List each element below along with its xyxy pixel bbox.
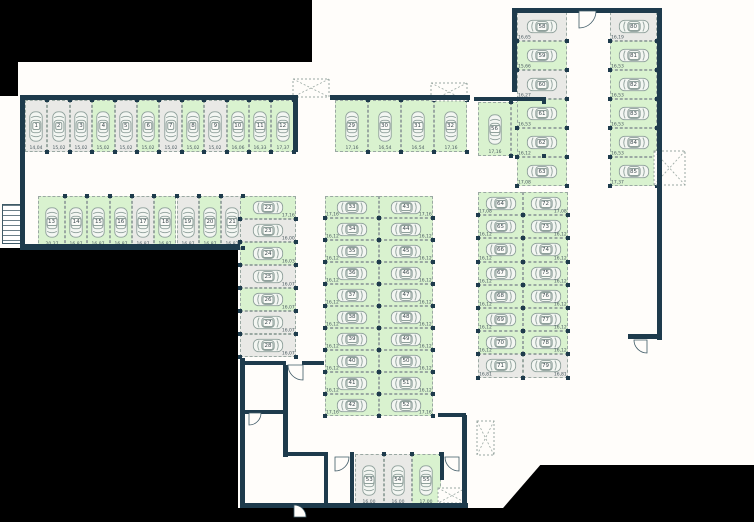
parking-space-23[interactable]: 2316,00	[240, 219, 296, 242]
space-number: 11	[255, 122, 266, 130]
parking-space-69[interactable]: 6916,12	[478, 308, 523, 331]
space-number: 21	[227, 218, 238, 226]
pillar	[431, 392, 435, 396]
pillar	[241, 246, 245, 250]
pillar	[521, 352, 525, 356]
space-dimension: 15,02	[164, 146, 177, 151]
wall	[657, 8, 662, 340]
space-number: 54	[392, 476, 403, 484]
pillar	[608, 39, 612, 43]
parking-space-40[interactable]: 4016,12	[325, 350, 379, 372]
parking-space-7[interactable]: 715,02	[159, 100, 181, 152]
parking-space-71[interactable]: 7116,81	[478, 354, 523, 377]
pillar	[521, 329, 525, 333]
parking-space-65[interactable]: 6516,12	[478, 215, 523, 238]
space-number: 15	[93, 218, 104, 226]
pillar	[399, 150, 403, 154]
parking-space-17[interactable]: 1716,87	[132, 196, 154, 248]
space-number: 30	[379, 122, 390, 130]
space-number: 79	[540, 362, 551, 370]
space-dimension: 16,81	[479, 372, 492, 377]
background-cutout	[0, 508, 754, 522]
space-dimension: 16,06	[231, 146, 244, 151]
space-dimension: 17,37	[611, 180, 624, 185]
parking-space-12[interactable]: 1217,37	[271, 100, 293, 152]
space-number: 85	[628, 168, 639, 176]
space-number: 33	[347, 203, 358, 211]
parking-space-5[interactable]: 515,02	[115, 100, 137, 152]
space-number: 58	[537, 23, 548, 31]
parking-space-81[interactable]: 8116,53	[610, 41, 657, 70]
parking-space-3[interactable]: 315,02	[70, 100, 92, 152]
space-number: 76	[540, 292, 551, 300]
pillar	[608, 155, 612, 159]
pillar	[294, 355, 298, 359]
space-dimension: 17,08	[518, 180, 531, 185]
parking-space-33[interactable]: 3317,16	[325, 196, 379, 218]
space-number: 43	[401, 203, 412, 211]
pillar	[323, 304, 327, 308]
pillar	[202, 150, 206, 154]
pillar	[521, 283, 525, 287]
space-number: 56	[489, 125, 500, 133]
space-number: 63	[537, 168, 548, 176]
pillar	[108, 194, 112, 198]
space-dimension: 16,53	[611, 93, 624, 98]
space-dimension: 16,12	[479, 325, 492, 330]
space-number: 46	[401, 269, 412, 277]
space-number: 29	[346, 122, 357, 130]
door-arc-icon	[293, 503, 308, 522]
parking-space-29[interactable]: 2917,16	[335, 100, 368, 152]
pillar	[476, 283, 480, 287]
space-dimension: 16,12	[326, 322, 339, 327]
space-dimension: 15,02	[75, 146, 88, 151]
parking-space-4[interactable]: 415,02	[92, 100, 114, 152]
pillar	[323, 414, 327, 418]
space-dimension: 16,53	[611, 151, 624, 156]
space-dimension: 16,12	[326, 234, 339, 239]
wall	[293, 95, 298, 152]
pillar	[476, 260, 480, 264]
parking-space-43[interactable]: 4317,16	[379, 196, 433, 218]
pillar	[68, 150, 72, 154]
pillar	[238, 309, 242, 313]
parking-space-76[interactable]: 7616,12	[523, 285, 568, 308]
space-number: 8	[189, 122, 197, 130]
parking-floor-plan: 114,04215,02315,02415,02515,02615,02715,…	[0, 0, 754, 522]
pillar	[323, 282, 327, 286]
parking-space-10[interactable]: 1016,06	[227, 100, 249, 152]
pillar	[566, 236, 570, 240]
space-number: 27	[263, 319, 274, 327]
parking-space-25[interactable]: 2516,07	[240, 265, 296, 288]
space-number: 35	[347, 247, 358, 255]
space-number: 73	[540, 223, 551, 231]
parking-space-78[interactable]: 7816,12	[523, 331, 568, 354]
pillar	[410, 452, 414, 456]
pillar	[515, 155, 519, 159]
pillar	[431, 260, 435, 264]
space-number: 44	[401, 225, 412, 233]
floor-slab	[668, 0, 754, 465]
pillar	[566, 352, 570, 356]
pillar	[565, 68, 569, 72]
space-number: 23	[263, 227, 274, 235]
parking-space-53[interactable]: 5316,00	[355, 454, 384, 506]
parking-space-14[interactable]: 1416,87	[65, 196, 87, 248]
parking-space-48[interactable]: 4816,12	[379, 306, 433, 328]
space-number: 77	[540, 316, 551, 324]
parking-space-51[interactable]: 5116,12	[379, 372, 433, 394]
space-number: 47	[401, 291, 412, 299]
wall	[330, 95, 470, 100]
space-dimension: 17,16	[326, 212, 339, 217]
pillar	[521, 376, 525, 380]
pillar	[377, 238, 381, 242]
parking-space-15[interactable]: 1516,87	[87, 196, 109, 248]
parking-space-66[interactable]: 6616,12	[478, 238, 523, 261]
pillar	[180, 150, 184, 154]
wall	[462, 415, 467, 507]
space-number: 19	[182, 218, 193, 226]
space-dimension: 16,12	[479, 232, 492, 237]
pillar	[521, 213, 525, 217]
pillar	[565, 184, 569, 188]
parking-space-34[interactable]: 3416,12	[325, 218, 379, 240]
parking-space-39[interactable]: 3916,12	[325, 328, 379, 350]
pillar	[175, 194, 179, 198]
space-dimension: 16,12	[479, 348, 492, 353]
parking-space-64[interactable]: 6417,08	[478, 192, 523, 215]
space-dimension: 16,12	[326, 388, 339, 393]
space-number: 81	[628, 52, 639, 60]
pillar	[382, 452, 386, 456]
space-dimension: 16,12	[518, 151, 531, 156]
pillar	[431, 348, 435, 352]
parking-space-2[interactable]: 215,02	[47, 100, 69, 152]
pillar	[465, 150, 469, 154]
space-number: 36	[347, 269, 358, 277]
space-number: 32	[445, 122, 456, 130]
parking-space-59[interactable]: 5915,66	[517, 41, 567, 70]
parking-space-73[interactable]: 7316,12	[523, 215, 568, 238]
space-dimension: 15,02	[209, 146, 222, 151]
wall	[20, 244, 240, 250]
parking-space-67[interactable]: 6716,12	[478, 262, 523, 285]
parking-space-50[interactable]: 5016,12	[379, 350, 433, 372]
pillar	[431, 414, 435, 418]
background-cutout	[0, 250, 238, 508]
space-dimension: 15,02	[142, 146, 155, 151]
pillar	[323, 370, 327, 374]
parking-space-44[interactable]: 4416,12	[379, 218, 433, 240]
space-number: 53	[364, 476, 375, 484]
space-dimension: 16,12	[326, 300, 339, 305]
pillar	[63, 194, 67, 198]
space-number: 75	[540, 269, 551, 277]
parking-space-20[interactable]: 2016,87	[199, 196, 221, 248]
pillar	[135, 150, 139, 154]
pillar	[247, 150, 251, 154]
pillar	[566, 376, 570, 380]
wall	[283, 452, 328, 456]
space-number: 82	[628, 81, 639, 89]
space-number: 1	[32, 122, 40, 130]
pillar	[366, 150, 370, 154]
space-number: 80	[628, 23, 639, 31]
parking-space-32[interactable]: 3217,16	[434, 100, 467, 152]
background-cutout	[0, 0, 312, 62]
space-number: 67	[495, 269, 506, 277]
wall	[512, 8, 517, 92]
pillar	[377, 370, 381, 374]
space-dimension: 16,12	[479, 279, 492, 284]
parking-space-84[interactable]: 8416,53	[610, 128, 657, 157]
pillar	[515, 184, 519, 188]
pillar	[565, 97, 569, 101]
parking-space-45[interactable]: 4516,12	[379, 240, 433, 262]
pillar	[476, 329, 480, 333]
parking-space-72[interactable]: 7217,08	[523, 192, 568, 215]
pillar	[323, 216, 327, 220]
space-number: 14	[71, 218, 82, 226]
pillar	[294, 263, 298, 267]
space-dimension: 16,54	[378, 146, 391, 151]
pillar	[431, 238, 435, 242]
pillar	[85, 194, 89, 198]
wall	[302, 361, 324, 365]
parking-space-54[interactable]: 5416,00	[384, 454, 413, 506]
space-number: 78	[540, 339, 551, 347]
pillar	[377, 392, 381, 396]
space-dimension: 16,12	[326, 344, 339, 349]
wall	[474, 97, 546, 101]
parking-space-85[interactable]: 8517,37	[610, 157, 657, 186]
pillar	[377, 348, 381, 352]
parking-space-56[interactable]: 5617,16	[478, 102, 511, 156]
pillar	[431, 216, 435, 220]
parking-space-26[interactable]: 2616,07	[240, 288, 296, 311]
pillar	[294, 309, 298, 313]
space-dimension: 16,19	[611, 35, 624, 40]
space-number: 17	[138, 218, 149, 226]
pillar	[566, 329, 570, 333]
space-dimension: 16,53	[611, 64, 624, 69]
parking-space-60[interactable]: 6016,27	[517, 70, 567, 99]
space-number: 48	[401, 313, 412, 321]
space-number: 3	[77, 122, 85, 130]
space-dimension: 16,33	[254, 146, 267, 151]
door-arc-icon	[578, 10, 598, 34]
parking-space-16[interactable]: 1616,87	[110, 196, 132, 248]
parking-space-13[interactable]: 1320,27	[38, 196, 65, 248]
pillar	[608, 184, 612, 188]
pillar	[521, 260, 525, 264]
parking-space-24[interactable]: 2416,03	[240, 242, 296, 265]
pillar	[509, 154, 513, 158]
pillar	[521, 236, 525, 240]
parking-space-41[interactable]: 4116,12	[325, 372, 379, 394]
parking-space-68[interactable]: 6816,12	[478, 285, 523, 308]
pillar	[476, 306, 480, 310]
pillar	[377, 304, 381, 308]
space-number: 5	[122, 122, 130, 130]
wall	[324, 452, 328, 508]
parking-space-19[interactable]: 1916,87	[177, 196, 199, 248]
space-dimension: 14,04	[30, 146, 43, 151]
space-number: 69	[495, 316, 506, 324]
pillar	[238, 263, 242, 267]
pillar	[608, 97, 612, 101]
vent-shaft-icon	[476, 420, 495, 460]
pillar	[323, 326, 327, 330]
pillar	[323, 238, 327, 242]
space-number: 40	[347, 357, 358, 365]
space-dimension: 17,16	[488, 150, 501, 155]
door-arc-icon	[443, 456, 460, 477]
parking-space-70[interactable]: 7016,12	[478, 331, 523, 354]
pillar	[238, 286, 242, 290]
parking-space-79[interactable]: 7916,81	[523, 354, 568, 377]
parking-space-30[interactable]: 3016,54	[368, 100, 401, 152]
space-number: 20	[204, 218, 215, 226]
space-number: 2	[55, 122, 63, 130]
space-number: 71	[495, 362, 506, 370]
pillar	[45, 150, 49, 154]
space-dimension: 16,53	[611, 122, 624, 127]
parking-space-82[interactable]: 8216,53	[610, 70, 657, 99]
parking-space-77[interactable]: 7716,12	[523, 308, 568, 331]
parking-space-27[interactable]: 2716,07	[240, 311, 296, 334]
space-dimension: 16,53	[518, 122, 531, 127]
parking-space-8[interactable]: 815,02	[182, 100, 204, 152]
pillar	[225, 150, 229, 154]
space-number: 38	[347, 313, 358, 321]
space-number: 50	[401, 357, 412, 365]
parking-space-9[interactable]: 915,02	[204, 100, 226, 152]
space-number: 22	[263, 204, 274, 212]
space-number: 7	[167, 122, 175, 130]
pillar	[566, 213, 570, 217]
pillar	[565, 39, 569, 43]
pillar	[515, 126, 519, 130]
space-number: 25	[263, 273, 274, 281]
space-number: 9	[212, 122, 220, 130]
parking-space-18[interactable]: 1816,87	[154, 196, 176, 248]
space-dimension: 16,12	[326, 366, 339, 371]
parking-space-46[interactable]: 4616,12	[379, 262, 433, 284]
space-dimension: 17,16	[345, 146, 358, 151]
wall	[240, 361, 286, 365]
parking-space-75[interactable]: 7516,12	[523, 262, 568, 285]
space-dimension: 17,16	[444, 146, 457, 151]
parking-space-83[interactable]: 8316,53	[610, 99, 657, 128]
space-number: 52	[401, 401, 412, 409]
parking-space-38[interactable]: 3816,12	[325, 306, 379, 328]
pillar	[542, 154, 546, 158]
space-dimension: 15,02	[52, 146, 65, 151]
space-number: 42	[347, 401, 358, 409]
door-arc-icon	[286, 364, 304, 386]
pillar	[476, 213, 480, 217]
space-number: 4	[100, 122, 108, 130]
wall	[438, 413, 466, 417]
space-number: 59	[537, 52, 548, 60]
parking-space-11[interactable]: 1116,33	[249, 100, 271, 152]
pillar	[608, 68, 612, 72]
space-dimension: 16,12	[479, 256, 492, 261]
pillar	[157, 150, 161, 154]
space-dimension: 15,02	[97, 146, 110, 151]
pillar	[431, 304, 435, 308]
space-number: 55	[421, 476, 432, 484]
space-number: 31	[412, 122, 423, 130]
space-dimension: 15,02	[119, 146, 132, 151]
parking-space-1[interactable]: 114,04	[25, 100, 47, 152]
space-number: 28	[263, 342, 274, 350]
parking-space-22[interactable]: 2217,16	[240, 196, 296, 219]
space-number: 26	[263, 296, 274, 304]
space-number: 34	[347, 225, 358, 233]
parking-space-36[interactable]: 3616,12	[325, 262, 379, 284]
parking-space-35[interactable]: 3516,12	[325, 240, 379, 262]
parking-space-28[interactable]: 2816,07	[240, 334, 296, 357]
pillar	[90, 150, 94, 154]
space-number: 10	[232, 122, 243, 130]
pillar	[521, 306, 525, 310]
door-arc-icon	[248, 412, 263, 431]
space-dimension: 16,12	[326, 256, 339, 261]
wall	[240, 503, 468, 508]
pillar	[566, 306, 570, 310]
parking-space-80[interactable]: 8016,19	[610, 12, 657, 41]
parking-space-63[interactable]: 6317,08	[517, 157, 567, 186]
parking-space-49[interactable]: 4916,12	[379, 328, 433, 350]
parking-space-52[interactable]: 5217,16	[379, 394, 433, 416]
space-number: 72	[540, 200, 551, 208]
space-dimension: 15,02	[187, 146, 200, 151]
pillar	[377, 282, 381, 286]
space-dimension: 16,12	[479, 302, 492, 307]
pillar	[432, 150, 436, 154]
space-number: 64	[495, 200, 506, 208]
pillar	[565, 126, 569, 130]
pillar	[565, 155, 569, 159]
pillar	[608, 126, 612, 130]
parking-space-74[interactable]: 7416,12	[523, 238, 568, 261]
pillar	[431, 326, 435, 330]
space-number: 66	[495, 246, 506, 254]
parking-space-47[interactable]: 4716,12	[379, 284, 433, 306]
pillar	[323, 348, 327, 352]
pillar	[238, 217, 242, 221]
parking-space-42[interactable]: 4217,16	[325, 394, 379, 416]
pillar	[566, 283, 570, 287]
parking-space-6[interactable]: 615,02	[137, 100, 159, 152]
wall	[240, 410, 286, 414]
parking-space-62[interactable]: 6216,12	[517, 128, 567, 157]
parking-space-58[interactable]: 5816,65	[517, 12, 567, 41]
space-number: 18	[160, 218, 171, 226]
parking-space-31[interactable]: 3116,54	[401, 100, 434, 152]
pillar	[431, 282, 435, 286]
space-dimension: 17,16	[326, 410, 339, 415]
pillar	[238, 332, 242, 336]
pillar	[476, 352, 480, 356]
parking-space-37[interactable]: 3716,12	[325, 284, 379, 306]
pillar	[377, 216, 381, 220]
